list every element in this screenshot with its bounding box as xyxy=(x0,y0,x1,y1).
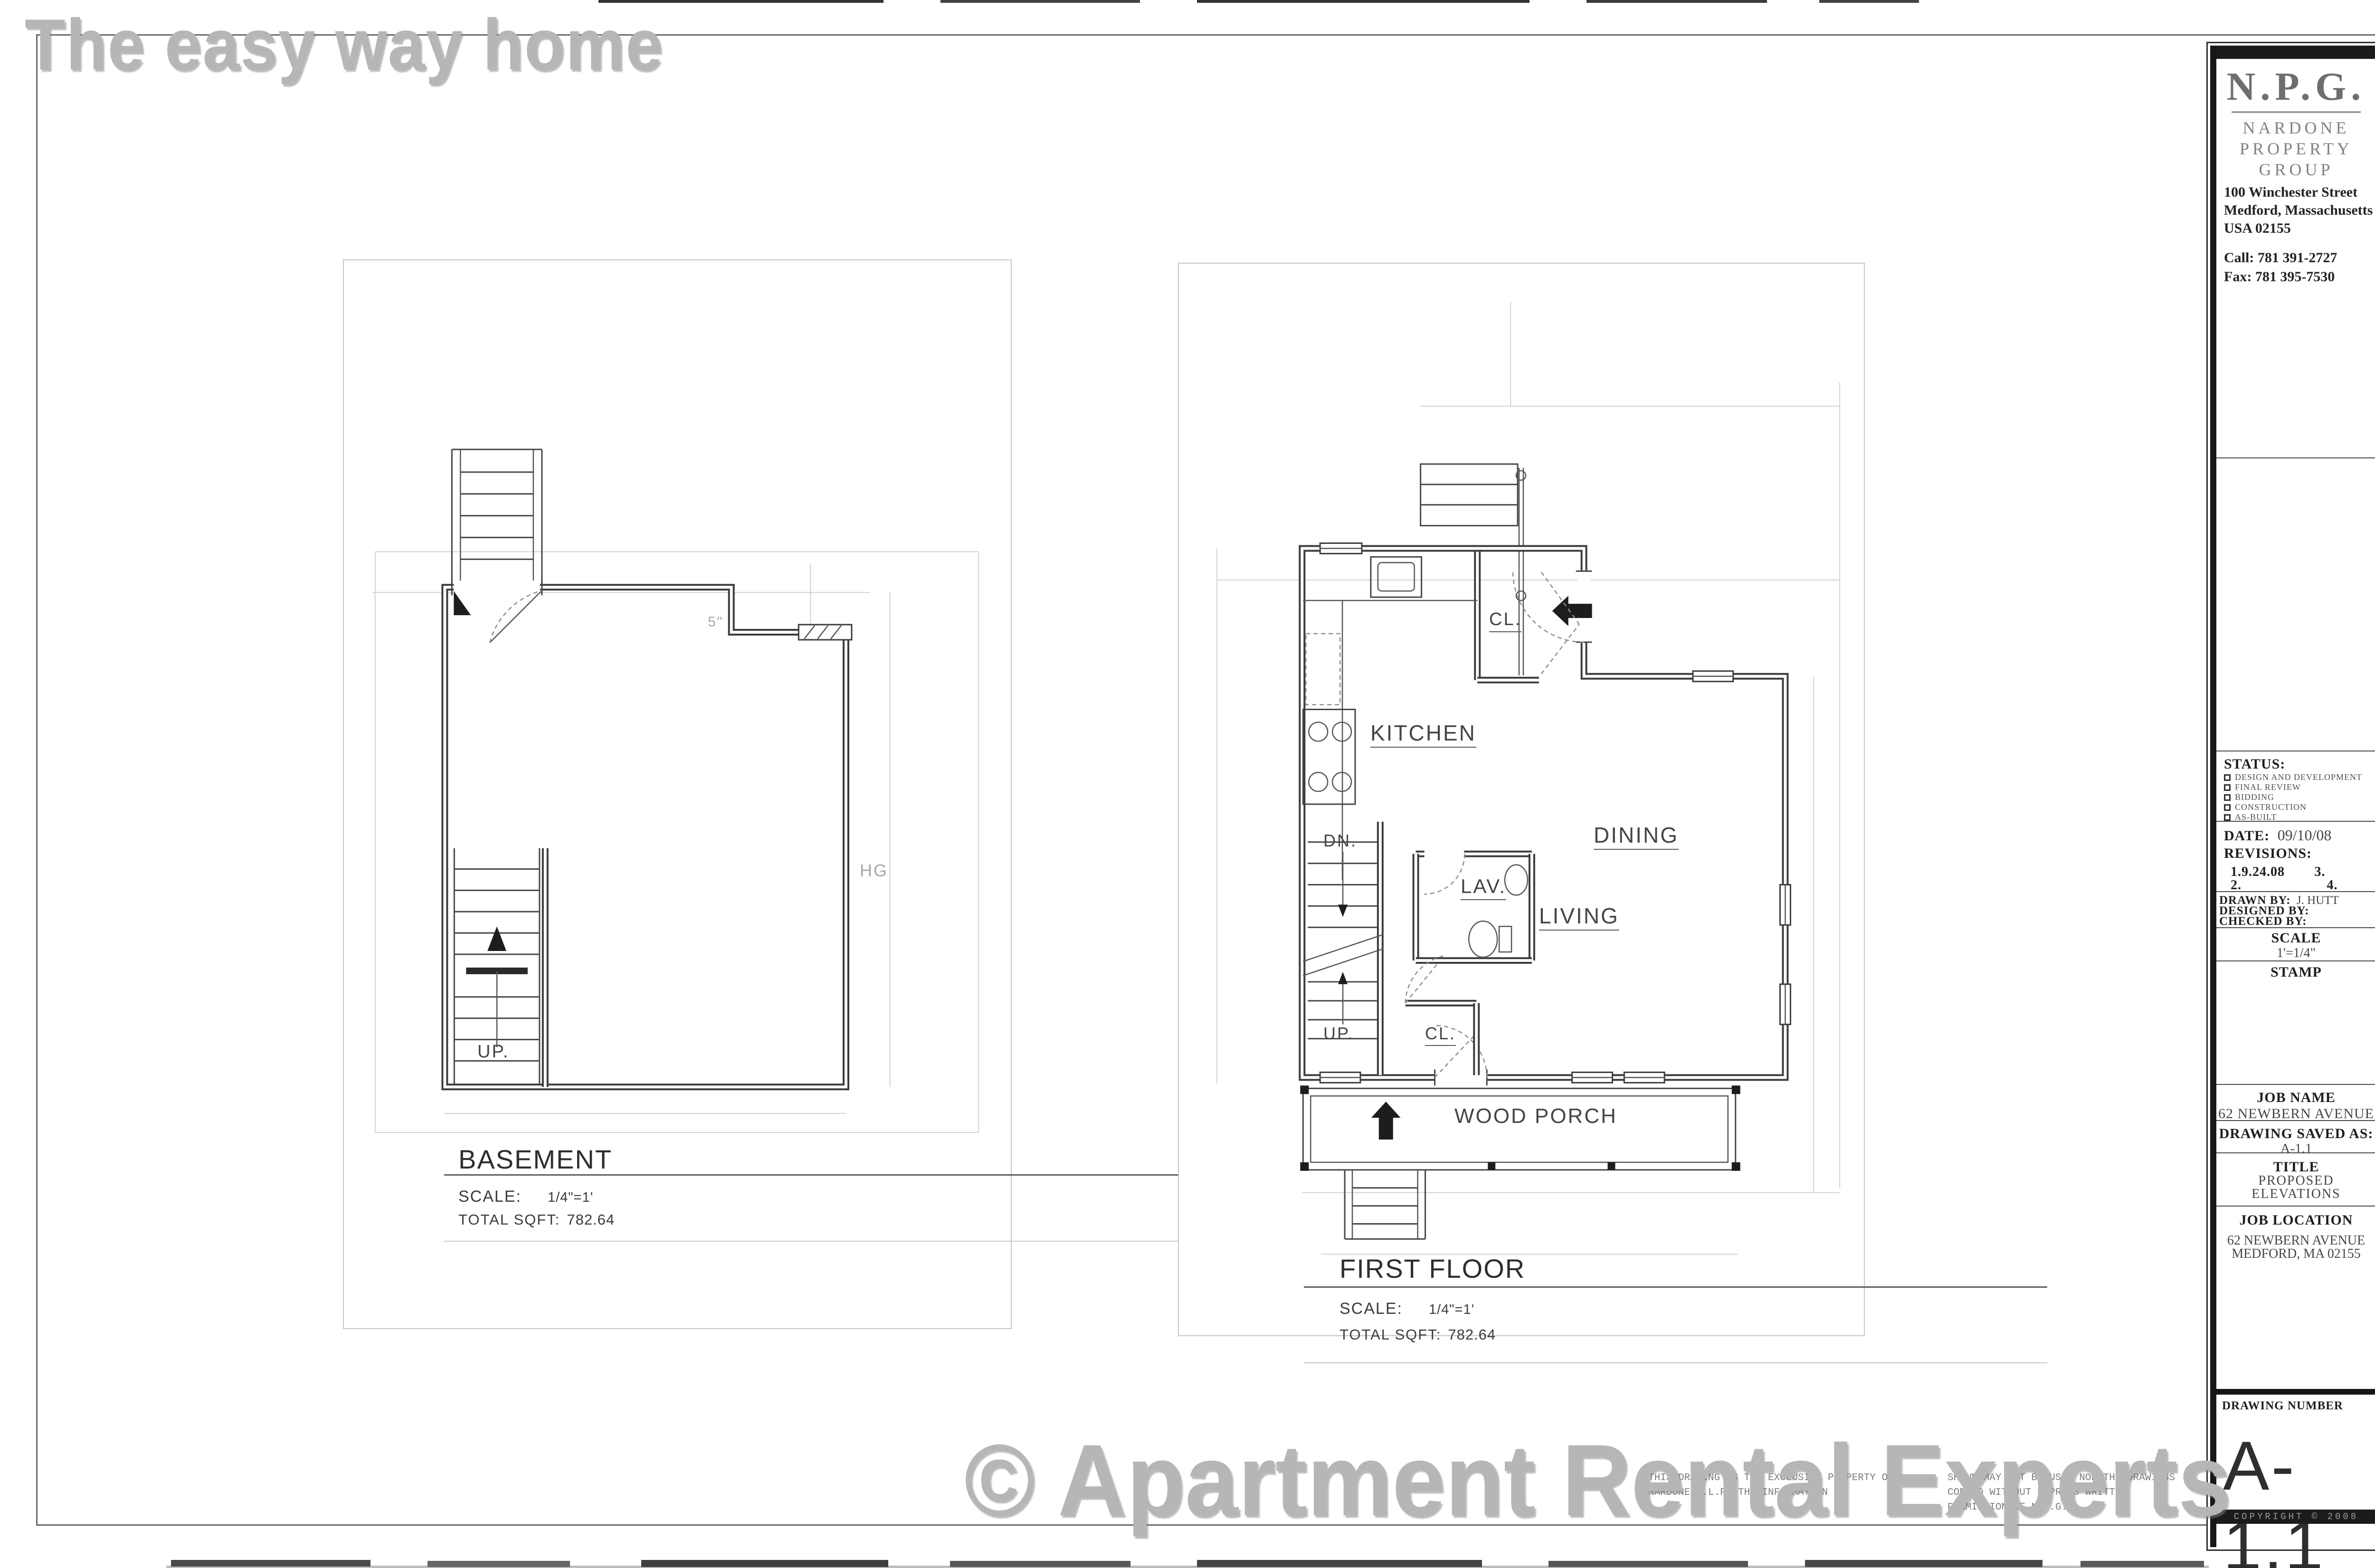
sqft-value: 782.64 xyxy=(1448,1326,1496,1343)
scale-heading: SCALE xyxy=(2216,930,2375,946)
checkbox-icon xyxy=(2224,774,2231,781)
scan-artifact xyxy=(641,1560,888,1567)
scan-artifact xyxy=(950,1561,1130,1567)
divider-thick xyxy=(2216,1389,2375,1395)
basement-dimension-note: 5" xyxy=(708,615,723,629)
divider xyxy=(2216,960,2375,961)
basement-title: BASEMENT xyxy=(458,1144,612,1175)
sqft-label: TOTAL SQFT: xyxy=(1339,1326,1441,1343)
divider xyxy=(2216,891,2375,892)
status-option: DESIGN AND DEVELOPMENT xyxy=(2224,772,2374,782)
divider xyxy=(2216,1084,2375,1085)
company-initials: N.P.G. xyxy=(2216,64,2375,110)
company-name-line: PROPERTY xyxy=(2216,139,2375,159)
npg-rule xyxy=(2232,111,2361,113)
basement-sqft-row: TOTAL SQFT:782.64 xyxy=(458,1211,615,1228)
basement-up-label: UP. xyxy=(477,1043,509,1061)
status-option: CONSTRUCTION xyxy=(2224,802,2374,812)
divider xyxy=(2216,927,2375,928)
job-location-line: MEDFORD, MA 02155 xyxy=(2216,1246,2375,1262)
phone: Call: 781 391-2727 xyxy=(2224,250,2375,266)
revision-4: 4. xyxy=(2327,878,2337,893)
address-line: Medford, Massachusetts xyxy=(2224,202,2375,219)
checkbox-icon xyxy=(2224,804,2231,811)
watermark-top: The easy way home xyxy=(25,9,664,81)
scale-value: 1/4"=1' xyxy=(548,1190,593,1205)
basement-scale-row: SCALE:1/4"=1' xyxy=(458,1188,593,1206)
basement-title-rule xyxy=(444,1174,1178,1176)
first-floor-sqft-row: TOTAL SQFT:782.64 xyxy=(1339,1326,1496,1343)
title-heading: TITLE xyxy=(2216,1159,2375,1175)
drawing-number-heading: DRAWING NUMBER xyxy=(2222,1399,2375,1413)
job-name-heading: JOB NAME xyxy=(2216,1090,2375,1106)
sqft-label: TOTAL SQFT: xyxy=(458,1211,560,1228)
checkbox-icon xyxy=(2224,784,2231,791)
date-value: 09/10/08 xyxy=(2278,827,2332,844)
living-label: LIVING xyxy=(1539,905,1619,931)
up-label: UP. xyxy=(1323,1025,1354,1042)
drawing-number-value: A-1.1 xyxy=(2223,1426,2375,1568)
checked-by-label: CHECKED BY: xyxy=(2219,915,2375,928)
date-label: DATE: xyxy=(2224,828,2270,844)
title-block: N.P.G. NARDONE PROPERTY GROUP 100 Winche… xyxy=(2206,42,2375,1551)
dining-label: DINING xyxy=(1594,824,1679,850)
down-label: DN. xyxy=(1323,832,1357,849)
scale-value: 1/4"=1' xyxy=(1429,1302,1474,1317)
checkbox-icon xyxy=(2224,814,2231,821)
scan-artifact xyxy=(1819,0,1919,3)
saved-as-value: A-1.1 xyxy=(2216,1141,2375,1157)
company-name-line: GROUP xyxy=(2216,160,2375,180)
divider xyxy=(2216,457,2375,458)
first-floor-title: FIRST FLOOR xyxy=(1339,1253,1525,1284)
title-block-top-bar xyxy=(2216,46,2375,59)
revision-2: 2. xyxy=(2231,878,2242,893)
address-line: USA 02155 xyxy=(2224,220,2375,237)
divider xyxy=(2216,1152,2375,1153)
first-floor-scale-row: SCALE:1/4"=1' xyxy=(1339,1300,1474,1318)
closet-bottom-label: CL. xyxy=(1425,1025,1456,1046)
checkbox-icon xyxy=(2224,794,2231,801)
kitchen-label: KITCHEN xyxy=(1370,722,1476,748)
status-option: BIDDING xyxy=(2224,792,2374,802)
fax: Fax: 781 395-7530 xyxy=(2224,269,2375,285)
basement-caption-rule xyxy=(444,1241,1178,1242)
scan-artifact xyxy=(1197,0,1529,3)
revisions-heading: REVISIONS: xyxy=(2224,846,2375,862)
wood-porch-label: WOOD PORCH xyxy=(1454,1106,1617,1127)
sqft-value: 782.64 xyxy=(567,1211,615,1228)
divider xyxy=(2216,1120,2375,1121)
revision-1: 1.9.24.08 xyxy=(2231,865,2285,879)
first-floor-caption-rule xyxy=(1304,1362,2047,1363)
scale-label: SCALE: xyxy=(458,1188,522,1206)
stamp-heading: STAMP xyxy=(2216,964,2375,980)
status-heading: STATUS: xyxy=(2224,756,2375,772)
scale-value: 1'=1/4" xyxy=(2216,946,2375,961)
sheet-border xyxy=(36,34,2375,1526)
address-line: 100 Winchester Street xyxy=(2224,184,2375,200)
title-line: ELEVATIONS xyxy=(2216,1187,2375,1202)
watermark-bottom: © Apartment Rental Experts xyxy=(964,1430,2231,1531)
divider xyxy=(2216,751,2375,751)
drawing-sheet: The easy way home xyxy=(0,0,2375,1568)
scan-artifact xyxy=(1805,1560,2042,1567)
scan-artifact xyxy=(2080,1561,2204,1567)
lav-label: LAV. xyxy=(1461,876,1506,900)
job-name-value: 62 NEWBERN AVENUE xyxy=(2216,1106,2375,1122)
job-location-heading: JOB LOCATION xyxy=(2216,1212,2375,1228)
saved-as-heading: DRAWING SAVED AS: xyxy=(2216,1126,2375,1142)
date-row: DATE: 09/10/08 xyxy=(2224,827,2375,844)
revision-3: 3. xyxy=(2314,865,2325,879)
divider xyxy=(2216,1206,2375,1207)
scan-artifact xyxy=(1586,0,1767,3)
scale-label: SCALE: xyxy=(1339,1300,1403,1318)
scan-artifact xyxy=(940,0,1140,3)
first-floor-title-rule xyxy=(1304,1286,2047,1288)
basement-faint-note: HG xyxy=(860,862,888,879)
closet-top-label: CL. xyxy=(1489,610,1521,632)
status-option: FINAL REVIEW xyxy=(2224,782,2374,792)
copyright-bar: COPYRIGHT © 2008 xyxy=(2216,1510,2375,1524)
scan-artifact xyxy=(427,1561,570,1567)
scan-artifact xyxy=(1197,1560,1482,1567)
scan-artifact xyxy=(598,0,883,3)
divider xyxy=(2216,821,2375,822)
scan-artifact xyxy=(1548,1561,1748,1567)
scan-artifact xyxy=(171,1560,370,1567)
company-name-line: NARDONE xyxy=(2216,118,2375,138)
title-block-inner: N.P.G. NARDONE PROPERTY GROUP 100 Winche… xyxy=(2210,46,2375,1547)
